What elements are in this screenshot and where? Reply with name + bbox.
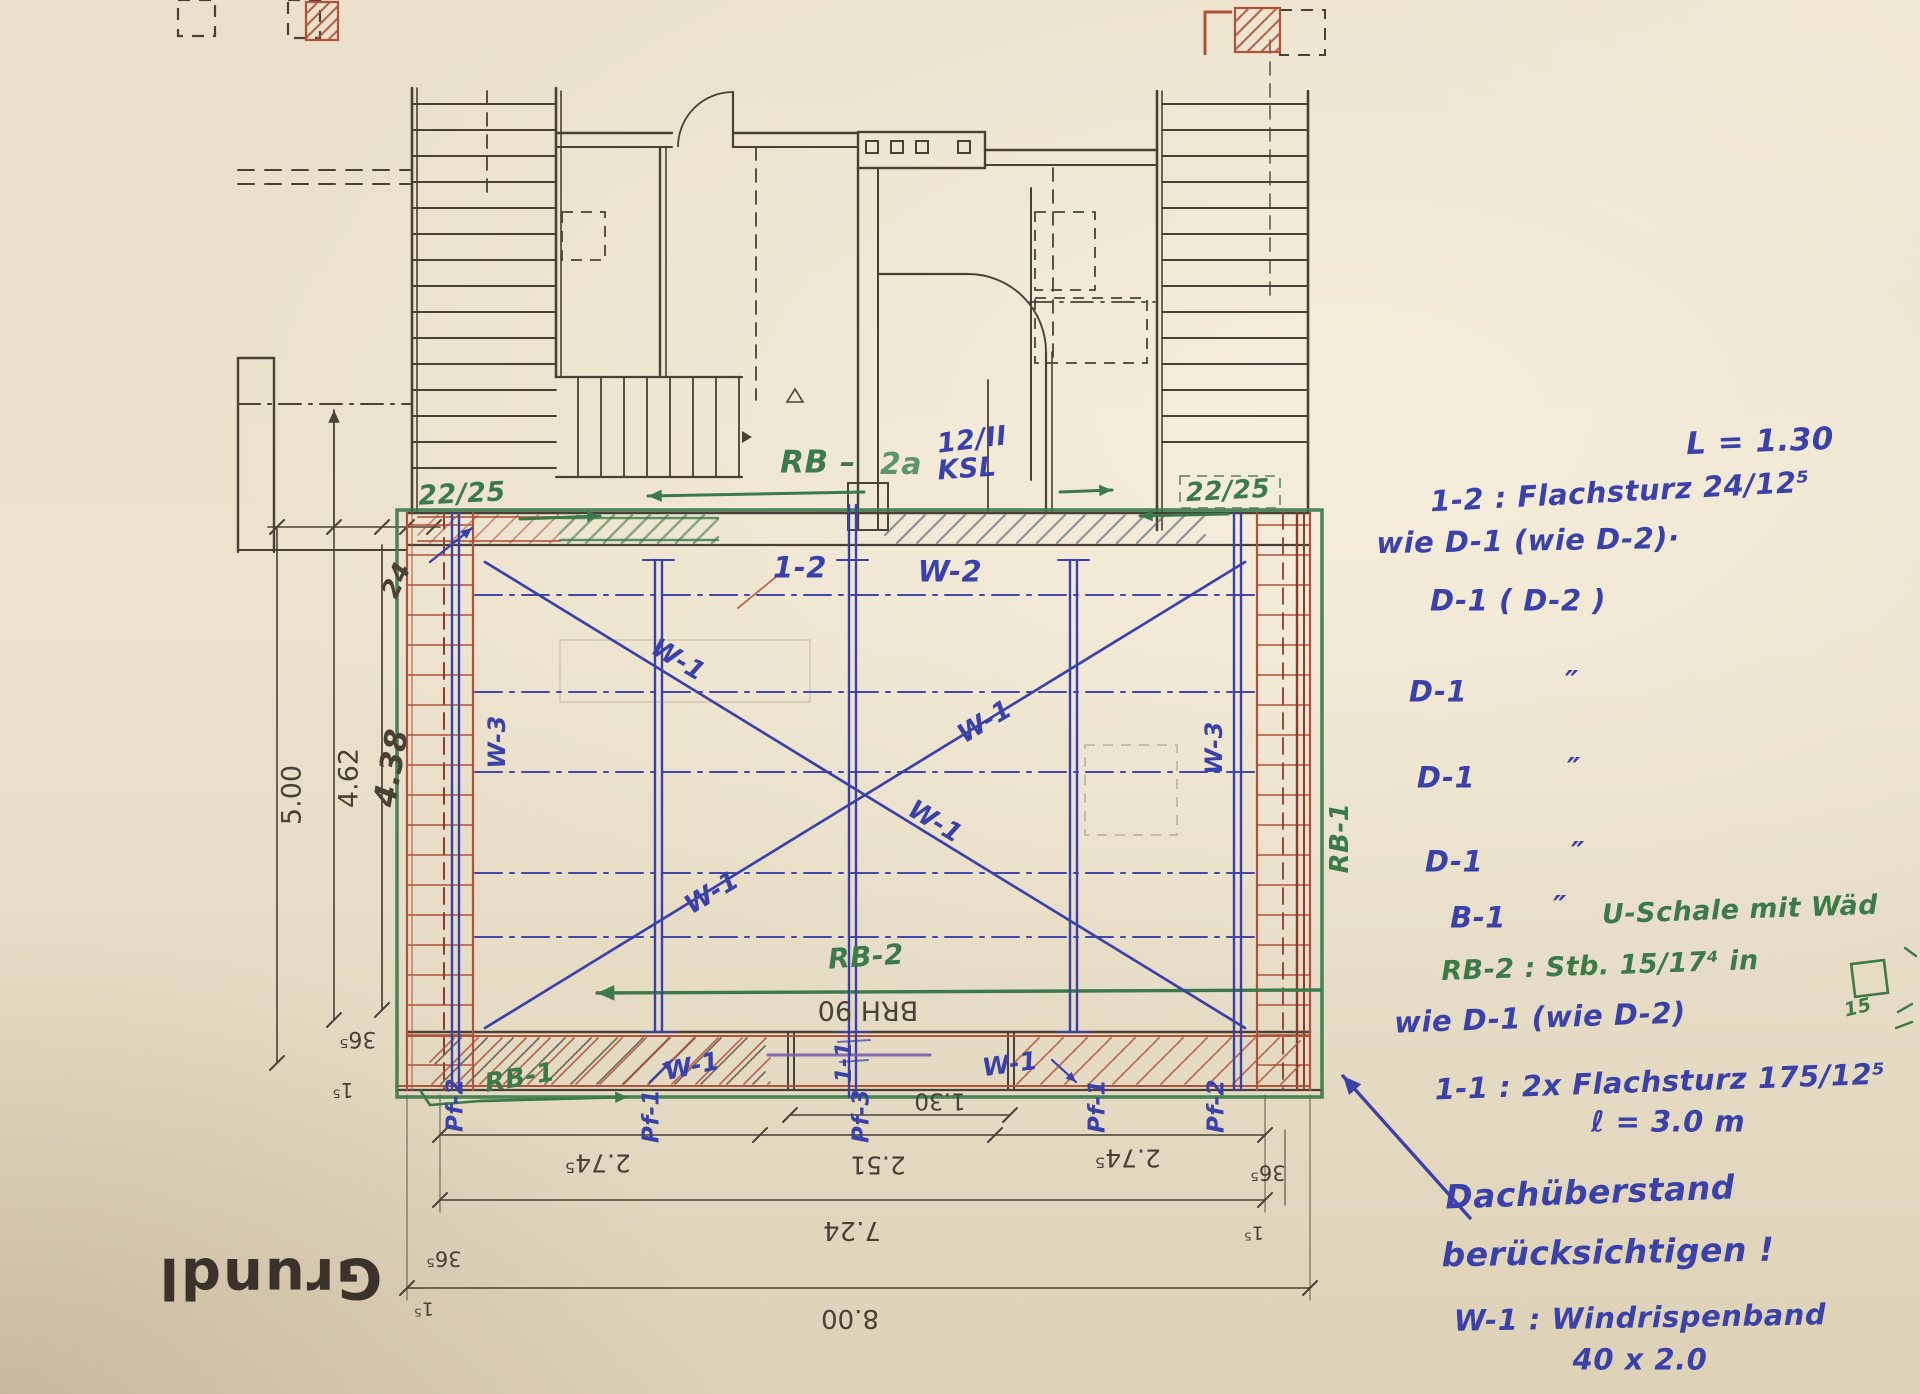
note-w1-spec2: 40 x 2.0	[1573, 1346, 1708, 1375]
note-ditto-row2: ″	[1565, 668, 1579, 698]
dim-1-bottom-right: 1⁵	[1244, 1223, 1264, 1242]
note-d1-row1: D-1 ( D-2 )	[1430, 587, 1606, 616]
scanned-floor-plan: Grundl 5.00 4.62 4.38 24 36⁵ 1⁵ 2.74⁵ 2.…	[0, 0, 1920, 1394]
pos-1-2-label: 1-2	[773, 554, 827, 583]
dim-36-bottom-left: 36⁵	[426, 1248, 461, 1269]
note-d1-row3: D-1	[1417, 764, 1475, 793]
post-pf1-right: Pf-1	[1087, 1079, 1110, 1133]
wall-w3-right: W-3	[1202, 721, 1226, 775]
note-w1-spec: W-1 : Windrispenband	[1454, 1300, 1827, 1335]
masonry-spec-line2: KSL	[937, 453, 998, 484]
pos-1-1-bottom: 1-1	[834, 1041, 856, 1082]
sheet-title: Grundl	[158, 1249, 383, 1305]
pencil-plan	[178, 0, 1325, 1090]
note-ditto-row3: ″	[1567, 755, 1581, 785]
note-d1-row2: D-1	[1409, 678, 1467, 707]
rb1-label-right: RB-1	[1327, 803, 1353, 874]
post-pf2-right: Pf-2	[1206, 1079, 1229, 1133]
dim-36-bottom-right: 36⁵	[1250, 1162, 1285, 1183]
note-b1: B-1	[1450, 904, 1506, 933]
lintel-label-left: 22/25	[418, 478, 507, 510]
note-length: L = 1.30	[1686, 424, 1835, 460]
wall-w3-left: W-3	[485, 715, 509, 769]
wall-w2-label: W-2	[918, 558, 982, 587]
dim-bottom-seg-mid: 2.51	[850, 1153, 906, 1178]
ring-beam-2a-pos: 2a	[880, 450, 922, 480]
dim-left-outer: 5.00	[279, 765, 306, 825]
note-wie-d1-a: wie D-1 (wie D-2)·	[1376, 524, 1680, 558]
ghost-lines	[560, 640, 1177, 835]
note-d1-row4: D-1	[1425, 848, 1483, 877]
note-ditto-b1: ″	[1553, 893, 1567, 923]
dim-bottom-seg-left: 2.74⁵	[565, 1151, 631, 1176]
ring-beam-2a: RB –	[780, 448, 856, 479]
dim-1-left-chain: 1⁵	[333, 1080, 354, 1100]
note-ditto-row4: ″	[1571, 839, 1585, 869]
post-pf1-left: Pf-1	[641, 1089, 664, 1143]
dim-1-bottom-left: 1⁵	[414, 1299, 434, 1318]
detail-square-icon	[1851, 960, 1888, 997]
green-pen	[397, 476, 1916, 1105]
lintel-label-right: 22/25	[1185, 476, 1271, 506]
brace-w1-bottom-right: W-1	[981, 1048, 1040, 1081]
note-len3: ℓ = 3.0 m	[1591, 1108, 1745, 1137]
post-pf3: Pf-3	[851, 1089, 874, 1143]
dim-opening-130: 1.30	[914, 1089, 965, 1112]
dim-outer-total: 8.00	[821, 1305, 879, 1331]
dim-bottom-seg-right: 2.74⁵	[1095, 1146, 1161, 1171]
post-pf2-left: Pf-2	[445, 1078, 468, 1132]
rb2-label: RB-2	[827, 940, 905, 973]
note-roof2: berücksichtigen !	[1441, 1233, 1774, 1272]
dim-inner-total: 7.24	[823, 1217, 881, 1243]
note-roof1: Dachüberstand	[1445, 1170, 1736, 1213]
parapet-height: BRH 90	[818, 997, 919, 1024]
dim-left-inner: 4.62	[336, 748, 363, 808]
dim-36-left-chain: 36⁵	[340, 1027, 377, 1049]
